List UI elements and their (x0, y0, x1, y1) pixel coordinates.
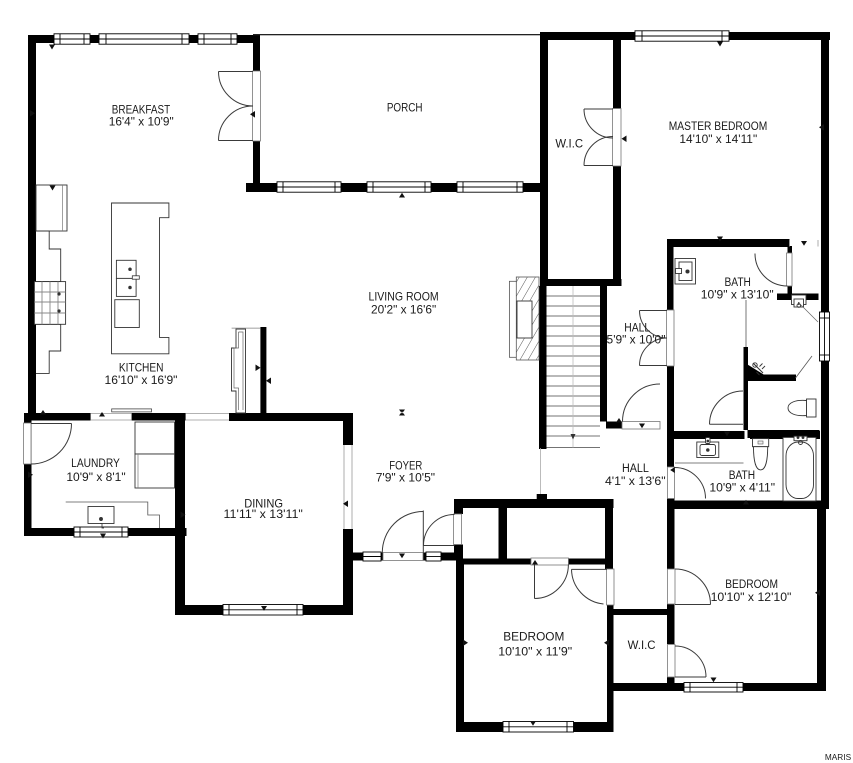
svg-text:16'10" x 16'9": 16'10" x 16'9" (105, 373, 178, 387)
svg-text:7'9" x 10'5": 7'9" x 10'5" (376, 470, 435, 484)
svg-text:LIVING ROOM: LIVING ROOM (369, 289, 439, 303)
svg-text:11'11" x 13'11": 11'11" x 13'11" (224, 507, 303, 521)
svg-text:BEDROOM: BEDROOM (503, 630, 564, 644)
svg-text:5'9" x 10'0": 5'9" x 10'0" (607, 333, 666, 347)
svg-text:4'1" x 13'6": 4'1" x 13'6" (605, 474, 666, 488)
svg-text:PORCH: PORCH (387, 100, 423, 114)
svg-text:10'10" x 12'10": 10'10" x 12'10" (711, 590, 792, 604)
svg-text:10'9" x 8'1": 10'9" x 8'1" (66, 470, 125, 484)
svg-text:BEDROOM: BEDROOM (725, 577, 778, 591)
svg-text:10'9" x 13'10": 10'9" x 13'10" (701, 288, 774, 302)
svg-text:W.I.C: W.I.C (555, 137, 583, 151)
svg-text:10'9" x 4'11": 10'9" x 4'11" (709, 480, 775, 494)
svg-text:14'10" x 14'11": 14'10" x 14'11" (679, 132, 757, 146)
svg-text:20'2" x 16'6": 20'2" x 16'6" (371, 302, 436, 316)
svg-text:MARIS: MARIS (825, 753, 851, 762)
svg-text:W.I.C: W.I.C (628, 638, 656, 652)
svg-text:16'4" x 10'9": 16'4" x 10'9" (109, 115, 174, 129)
svg-text:10'10" x 11'9": 10'10" x 11'9" (498, 645, 572, 659)
svg-text:LAUNDRY: LAUNDRY (71, 456, 120, 470)
svg-text:HALL: HALL (622, 461, 649, 475)
